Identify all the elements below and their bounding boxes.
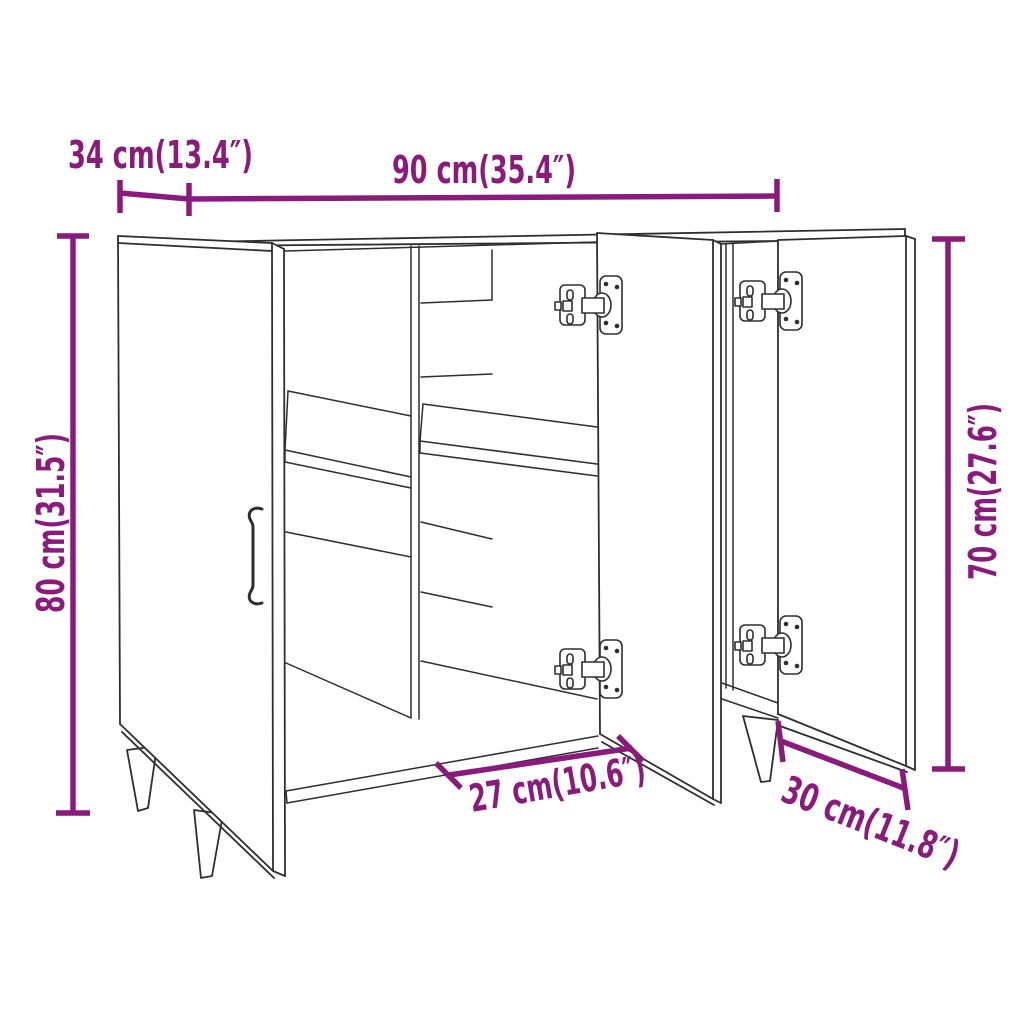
dimension-middle-door-width: 27 cm(10.6″) xyxy=(436,736,649,821)
dimension-label-width: 90 cm(35.4″) xyxy=(392,148,576,192)
leg-front-left xyxy=(194,810,223,878)
cabinet-right-door xyxy=(735,236,915,772)
diagram-canvas: 34 cm(13.4″) 90 cm(35.4″) 80 cm(31.5″) 7… xyxy=(0,0,1024,1024)
hinge-icon xyxy=(555,640,622,698)
dimension-label-height: 80 cm(31.5″) xyxy=(29,433,73,613)
hinge-icon xyxy=(735,616,802,674)
leg-front-middle xyxy=(743,716,778,782)
dimension-label-right-door-width: 30 cm(11.8″) xyxy=(776,767,966,876)
cabinet-middle-door xyxy=(555,233,721,805)
dimension-door-height: 70 cm(27.6″) xyxy=(932,239,1005,769)
product-dimension-image: 34 cm(13.4″) 90 cm(35.4″) 80 cm(31.5″) 7… xyxy=(0,0,1024,1024)
dimension-height: 80 cm(31.5″) xyxy=(29,236,90,813)
dimension-label-door-height: 70 cm(27.6″) xyxy=(961,403,1005,580)
hinge-icon xyxy=(555,276,622,334)
dimension-width: 90 cm(35.4″) xyxy=(189,148,777,212)
hinge-icon xyxy=(735,272,802,330)
dimension-depth: 34 cm(13.4″) xyxy=(68,133,253,216)
dimension-label-depth: 34 cm(13.4″) xyxy=(68,133,253,177)
